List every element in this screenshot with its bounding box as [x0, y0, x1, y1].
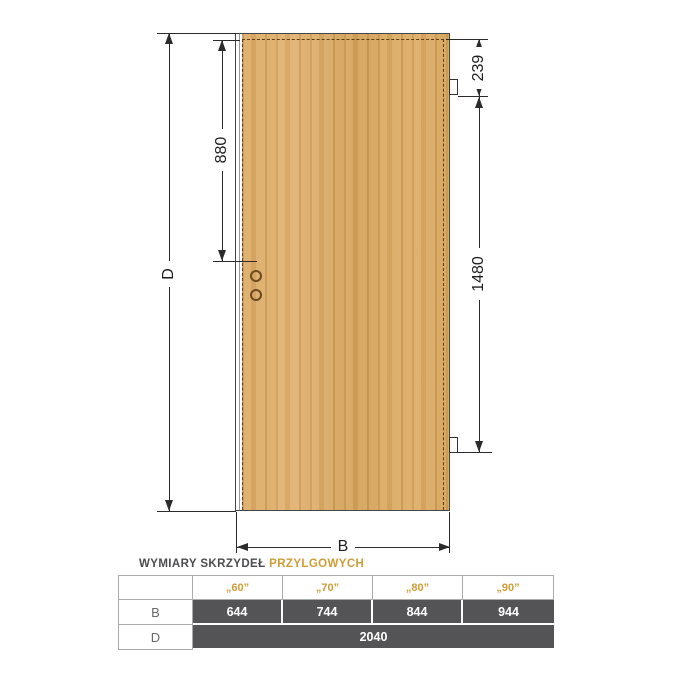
hinge-top: [449, 79, 458, 95]
table-title-main: WYMIARY SKRZYDEŁ: [139, 558, 266, 570]
arrowhead-up-icon: [165, 33, 173, 44]
value-cell-d: 2040: [193, 625, 554, 650]
ext-line-bottom-left: [157, 511, 236, 512]
table-title: WYMIARY SKRZYDEŁ PRZYLGOWYCH: [139, 558, 364, 570]
arrowhead-down-icon: [165, 500, 173, 511]
table-header-row: „60” „70” „80” „90”: [118, 575, 554, 600]
door-edge-strip-line: [239, 34, 240, 510]
value-cell-b-60: 644: [193, 600, 283, 625]
tick-880-bottom: [213, 261, 257, 262]
dim-label-hinge-spacing: 1480: [470, 248, 488, 300]
dim-label-total-height: D: [160, 261, 178, 287]
dimensions-table: „60” „70” „80” „90” B 644 744 844 944 D …: [118, 575, 554, 650]
arrowhead-down-icon: [475, 441, 483, 452]
header-cell-60: „60”: [193, 575, 283, 600]
ext-line-top-hinge: [458, 96, 488, 97]
rebate-dashed-outline: [242, 39, 444, 510]
header-cell-90: „90”: [463, 575, 554, 600]
row-label-d: D: [118, 625, 193, 650]
value-cell-b-90: 944: [463, 600, 554, 625]
door-dimensions-diagram: D 880 239 1480 B WYMIARY SKRZYDEŁ PRZYLG…: [0, 0, 700, 700]
arrowhead-up-icon: [475, 97, 483, 108]
table-title-accent: PRZYLGOWYCH: [269, 558, 364, 570]
value-cell-b-80: 844: [373, 600, 463, 625]
header-cell-80: „80”: [373, 575, 463, 600]
handle-hole-upper: [250, 270, 262, 282]
header-cell-empty: [118, 575, 193, 600]
row-label-b: B: [118, 600, 193, 625]
arrowhead-right-icon: [439, 543, 450, 551]
dim-label-top-hinge-offset: 239: [470, 47, 488, 89]
dim-label-total-width: B: [331, 538, 355, 556]
table-row-width: B 644 744 844 944: [118, 600, 554, 625]
arrowhead-up-icon: [218, 40, 226, 51]
table-row-height: D 2040: [118, 625, 554, 650]
header-cell-70: „70”: [283, 575, 373, 600]
arrowhead-down-icon: [218, 250, 226, 261]
value-cell-b-70: 744: [283, 600, 373, 625]
arrowhead-left-icon: [237, 543, 248, 551]
dim-label-handle-height: 880: [213, 129, 231, 171]
handle-hole-lower: [250, 289, 262, 301]
hinge-bottom: [449, 437, 458, 453]
ext-line-bottom-hinge: [458, 452, 492, 453]
